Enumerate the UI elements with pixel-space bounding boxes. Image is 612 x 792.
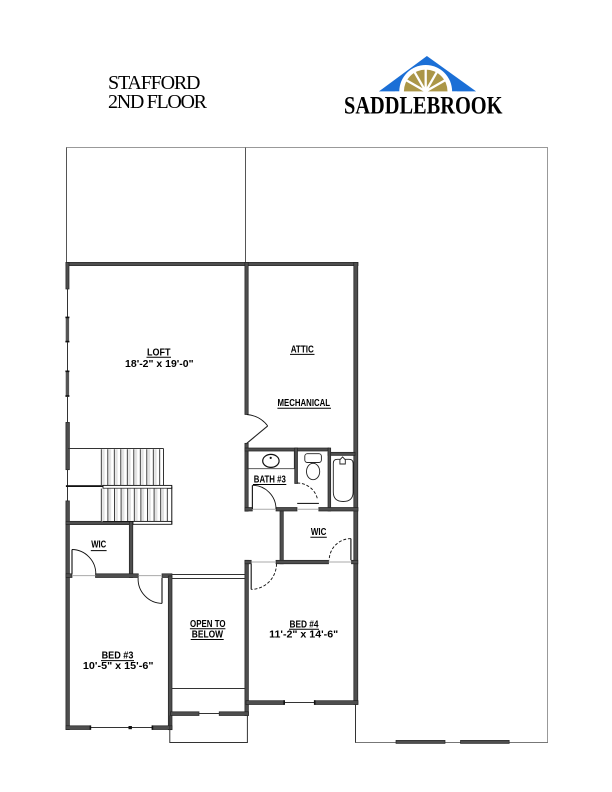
svg-text:BATH #3: BATH #3: [254, 475, 286, 486]
svg-text:SADDLEBROOK: SADDLEBROOK: [344, 90, 503, 119]
svg-text:WIC: WIC: [91, 540, 106, 551]
svg-text:OPEN TO: OPEN TO: [190, 619, 226, 630]
svg-text:BELOW: BELOW: [192, 630, 224, 641]
svg-text:ATTIC: ATTIC: [291, 344, 314, 355]
svg-text:11'-2" x 14'-6": 11'-2" x 14'-6": [269, 630, 338, 641]
svg-text:2ND FLOOR: 2ND FLOOR: [108, 91, 208, 113]
svg-text:10'-5" x 15'-6": 10'-5" x 15'-6": [83, 661, 154, 672]
svg-text:MECHANICAL: MECHANICAL: [278, 398, 331, 409]
svg-text:18'-2" x 19'-0": 18'-2" x 19'-0": [125, 359, 194, 370]
svg-text:BED #4: BED #4: [290, 619, 319, 630]
svg-text:WIC: WIC: [311, 527, 327, 538]
